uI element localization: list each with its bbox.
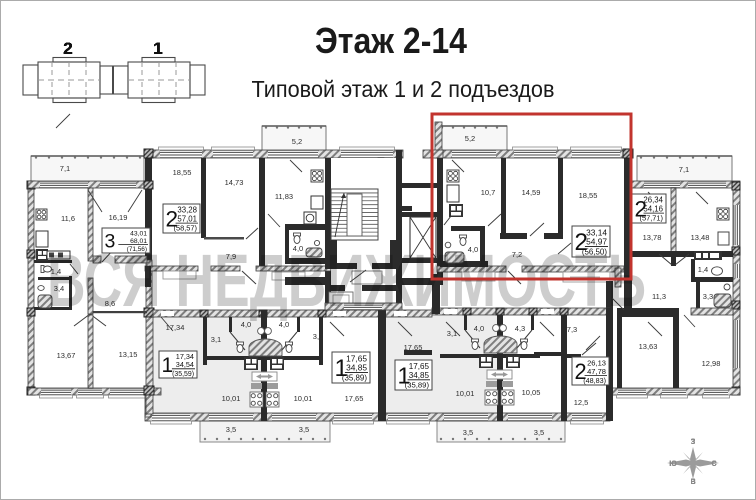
svg-text:16,19: 16,19 xyxy=(109,213,128,222)
svg-text:3,5: 3,5 xyxy=(226,425,236,434)
svg-text:11,83: 11,83 xyxy=(275,192,293,201)
svg-text:12,5: 12,5 xyxy=(574,398,589,407)
svg-text:54,16: 54,16 xyxy=(643,204,663,213)
svg-text:7,1: 7,1 xyxy=(679,165,689,174)
svg-text:Типовой этаж 1 и 2 подъездов: Типовой этаж 1 и 2 подъездов xyxy=(252,76,555,102)
svg-text:34,85: 34,85 xyxy=(346,363,367,373)
svg-text:(57,71): (57,71) xyxy=(639,214,663,223)
svg-text:14,73: 14,73 xyxy=(225,178,244,187)
svg-text:3,3: 3,3 xyxy=(703,292,713,301)
svg-text:13,48: 13,48 xyxy=(691,233,710,242)
svg-text:3,1: 3,1 xyxy=(313,332,323,341)
svg-text:10,01: 10,01 xyxy=(222,394,241,403)
svg-text:5,2: 5,2 xyxy=(465,134,475,143)
svg-text:3,5: 3,5 xyxy=(534,428,544,437)
svg-text:12,98: 12,98 xyxy=(702,359,721,368)
svg-text:10,7: 10,7 xyxy=(481,188,496,197)
svg-text:13,67: 13,67 xyxy=(57,351,76,360)
svg-text:3,5: 3,5 xyxy=(299,425,309,434)
svg-text:34,85: 34,85 xyxy=(409,371,430,380)
svg-text:в: в xyxy=(691,476,696,486)
svg-text:с: с xyxy=(712,458,717,468)
svg-text:Этаж 2-14: Этаж 2-14 xyxy=(315,20,467,61)
svg-text:18,55: 18,55 xyxy=(579,191,598,200)
svg-text:3,5: 3,5 xyxy=(463,428,473,437)
svg-text:17,65: 17,65 xyxy=(409,362,430,371)
svg-text:17,65: 17,65 xyxy=(404,343,423,352)
svg-text:11,3: 11,3 xyxy=(652,292,666,301)
svg-text:(58,57): (58,57) xyxy=(173,224,197,233)
svg-text:33,28: 33,28 xyxy=(177,206,197,215)
svg-text:1,4: 1,4 xyxy=(698,265,708,274)
svg-text:11,6: 11,6 xyxy=(61,214,75,223)
svg-text:(48,83): (48,83) xyxy=(583,377,606,385)
svg-text:18,55: 18,55 xyxy=(173,168,192,177)
svg-text:3,1: 3,1 xyxy=(447,329,457,338)
svg-text:2: 2 xyxy=(63,39,72,58)
svg-text:10,01: 10,01 xyxy=(456,389,475,398)
svg-text:10,01: 10,01 xyxy=(294,394,313,403)
svg-text:(35,59): (35,59) xyxy=(172,371,194,378)
svg-text:43,01: 43,01 xyxy=(130,231,147,238)
svg-text:14,59: 14,59 xyxy=(522,188,541,197)
svg-text:17,65: 17,65 xyxy=(345,394,364,403)
svg-text:4,3: 4,3 xyxy=(515,324,525,333)
svg-text:з: з xyxy=(691,436,695,446)
svg-text:47,78: 47,78 xyxy=(587,367,606,376)
svg-text:1: 1 xyxy=(153,39,162,58)
svg-text:57,01: 57,01 xyxy=(177,214,197,223)
svg-text:5,2: 5,2 xyxy=(292,137,302,146)
svg-text:(35,89): (35,89) xyxy=(342,374,368,383)
svg-text:ю: ю xyxy=(670,458,677,468)
svg-text:4,0: 4,0 xyxy=(474,324,484,333)
svg-text:34,54: 34,54 xyxy=(176,360,194,369)
svg-text:17,34: 17,34 xyxy=(166,323,185,332)
svg-text:(35,89): (35,89) xyxy=(405,381,430,390)
svg-text:7,1: 7,1 xyxy=(60,164,70,173)
svg-text:13,15: 13,15 xyxy=(119,350,138,359)
svg-text:7,3: 7,3 xyxy=(567,325,577,334)
svg-text:26,34: 26,34 xyxy=(643,196,663,205)
svg-text:13,63: 13,63 xyxy=(639,342,658,351)
svg-text:3,1: 3,1 xyxy=(211,335,221,344)
svg-text:10,05: 10,05 xyxy=(522,388,541,397)
